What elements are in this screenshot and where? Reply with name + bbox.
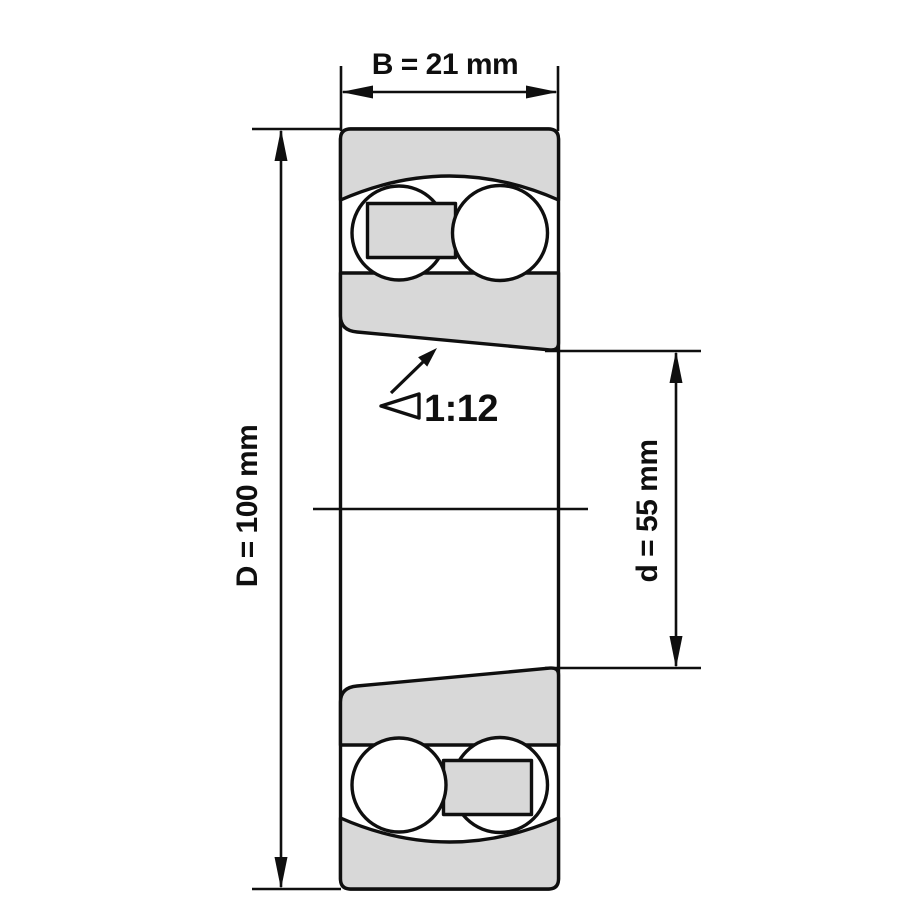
arrowhead-down-icon [670, 636, 683, 668]
arrowhead-up-icon [275, 129, 288, 161]
arrowhead-up-icon [670, 351, 683, 383]
bearing-drawing-page: B = 21 mm D = 100 mm d = 55 mm 1:12 [0, 0, 900, 900]
dimension-width: B = 21 mm [341, 48, 558, 131]
ball-lower-left [352, 738, 446, 832]
ball-upper-right [453, 186, 548, 281]
outer-diameter-label: D = 100 mm [231, 425, 264, 588]
arrowhead-right-icon [526, 86, 558, 99]
bore-diameter-label: d = 55 mm [631, 439, 664, 582]
bearing-diagram: B = 21 mm D = 100 mm d = 55 mm 1:12 [0, 0, 900, 900]
width-dimension-label: B = 21 mm [372, 48, 518, 81]
cage-lower [444, 761, 532, 815]
cage-upper [368, 204, 456, 258]
arrowhead-left-icon [341, 86, 373, 99]
arrowhead-down-icon [275, 857, 288, 889]
taper-ratio-label: 1:12 [424, 388, 498, 430]
